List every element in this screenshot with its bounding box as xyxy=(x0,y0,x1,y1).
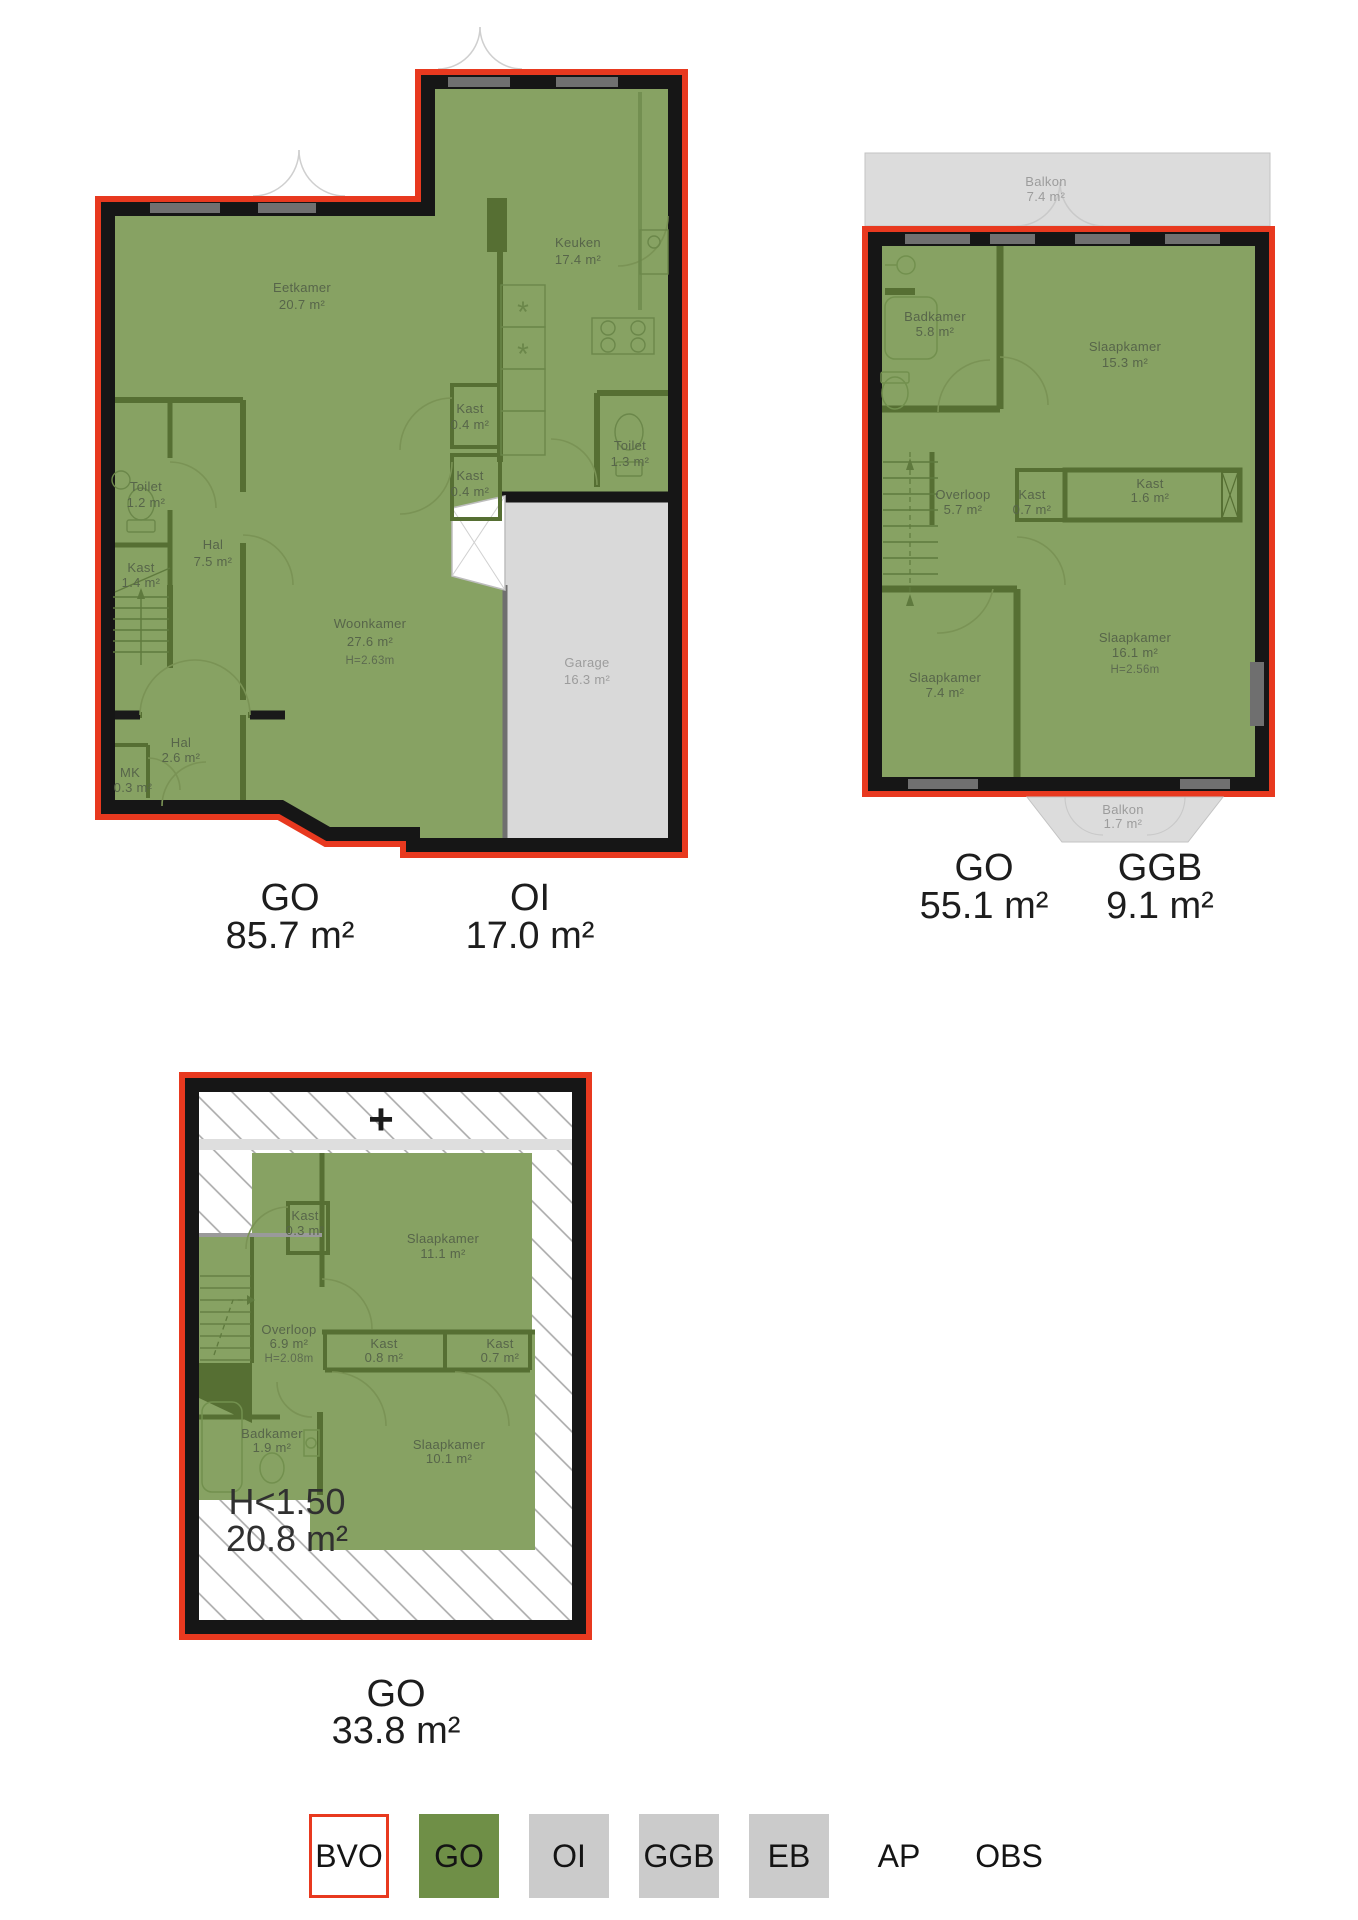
garage-door-icon xyxy=(452,496,505,590)
legend: BVO GO OI GGB EB AP OBS xyxy=(0,1814,1358,1898)
room-area: 0.4 m² xyxy=(451,484,490,499)
room-area: 15.3 m² xyxy=(1102,355,1149,370)
low-height-value: 20.8 m² xyxy=(226,1518,348,1559)
room-area: 0.4 m² xyxy=(451,417,490,432)
room-area: 0.8 m² xyxy=(365,1350,404,1365)
legend-item-ap: AP xyxy=(859,1814,939,1898)
room-label: Kast xyxy=(486,1336,513,1351)
svg-text:*: * xyxy=(517,338,529,371)
room-label: Kast xyxy=(291,1208,318,1223)
first-floor-plan: Balkon 7.4 m² Badkamer 5.8 m² Slaapkamer… xyxy=(865,153,1270,927)
room-area: 1.9 m² xyxy=(253,1440,292,1455)
room-label: Keuken xyxy=(555,235,601,250)
room-area: 11.1 m² xyxy=(420,1246,466,1261)
room-label: Kast xyxy=(370,1336,397,1351)
room-area: 1.7 m² xyxy=(1104,816,1143,831)
room-area: 5.7 m² xyxy=(944,502,983,517)
legend-item-oi: OI xyxy=(529,1814,609,1898)
room-area: 20.7 m² xyxy=(279,297,326,312)
room-label: Toilet xyxy=(130,479,162,494)
room-area: 16.3 m² xyxy=(564,672,611,687)
legend-item-go: GO xyxy=(419,1814,499,1898)
room-height: H=2.08m xyxy=(264,1353,313,1365)
area-value: 85.7 m² xyxy=(226,915,355,957)
low-height-label: H<1.50 20.8 m² xyxy=(226,1481,348,1559)
room-area: 1.2 m² xyxy=(127,495,166,510)
room-label: Overloop xyxy=(935,487,990,502)
room-label: Kast xyxy=(456,401,483,416)
area-labels: GO 85.7 m² OI 17.0 m² xyxy=(226,877,595,957)
legend-label: GGB xyxy=(643,1838,714,1875)
legend-item-ggb: GGB xyxy=(639,1814,719,1898)
room-label: Slaapkamer xyxy=(1099,630,1172,645)
room-area: 17.4 m² xyxy=(555,252,602,267)
legend-item-obs: OBS xyxy=(969,1814,1049,1898)
legend-item-bvo: BVO xyxy=(309,1814,389,1898)
balcony-top xyxy=(865,153,1270,226)
legend-item-eb: EB xyxy=(749,1814,829,1898)
area-code: GO xyxy=(366,1673,425,1715)
legend-label: BVO xyxy=(315,1838,383,1875)
legend-label: EB xyxy=(768,1838,811,1875)
room-label: Eetkamer xyxy=(273,280,331,295)
room-area: 10.1 m² xyxy=(426,1451,473,1466)
floorplans-canvas: * * Eetkamer 20.7 m² Keuken 17.4 m² Kast… xyxy=(0,0,1358,1920)
room-label: Kast xyxy=(1018,487,1045,502)
ground-floor-plan: * * Eetkamer 20.7 m² Keuken 17.4 m² Kast… xyxy=(112,27,668,957)
svg-text:*: * xyxy=(517,296,529,329)
room-area: 27.6 m² xyxy=(347,634,394,649)
room-area: 16.1 m² xyxy=(1112,645,1159,660)
room-label: Slaapkamer xyxy=(909,670,982,685)
room-label: Hal xyxy=(203,537,223,552)
plus-symbol: + xyxy=(368,1095,394,1144)
legend-label: AP xyxy=(878,1838,921,1875)
room-label: Balkon xyxy=(1102,802,1144,817)
area-value: 17.0 m² xyxy=(466,915,595,957)
low-height-code: H<1.50 xyxy=(228,1481,345,1522)
room-label: Badkamer xyxy=(241,1426,303,1441)
room-label: Balkon xyxy=(1025,174,1067,189)
area-value: 55.1 m² xyxy=(920,885,1049,927)
legend-label: OBS xyxy=(975,1838,1043,1875)
room-area: 0.3 m² xyxy=(286,1223,325,1238)
room-label: Slaapkamer xyxy=(413,1437,486,1452)
room-area: 1.6 m² xyxy=(1131,490,1170,505)
room-height: H=2.56m xyxy=(1110,664,1159,676)
room-area: 7.4 m² xyxy=(1027,189,1066,204)
room-label: Garage xyxy=(564,655,609,670)
room-label: Kast xyxy=(127,560,154,575)
room-label: Slaapkamer xyxy=(407,1231,480,1246)
attic-plan: + Kast 0.3 m² Slaapkamer 11.1 m² Overloo… xyxy=(199,1092,572,1752)
room-area: 0.7 m² xyxy=(481,1350,520,1365)
area-code: OI xyxy=(510,877,550,919)
floorplan-sheet: * * Eetkamer 20.7 m² Keuken 17.4 m² Kast… xyxy=(0,0,1358,1920)
area-value: 33.8 m² xyxy=(332,1710,461,1752)
room-label: Overloop xyxy=(261,1322,316,1337)
room-label: Woonkamer xyxy=(334,616,407,631)
area-labels: GO 33.8 m² xyxy=(332,1673,461,1752)
area-code: GO xyxy=(954,847,1013,889)
area-labels: GO 55.1 m² GGB 9.1 m² xyxy=(920,847,1214,927)
room-area: 2.6 m² xyxy=(162,750,201,765)
area-value: 9.1 m² xyxy=(1106,885,1214,927)
room-label: Hal xyxy=(171,735,191,750)
legend-label: OI xyxy=(552,1838,586,1875)
room-height: H=2.63m xyxy=(345,655,394,667)
room-area: 1.4 m² xyxy=(122,575,161,590)
window-block xyxy=(1250,662,1264,726)
room-label: Slaapkamer xyxy=(1089,339,1162,354)
room-label: Kast xyxy=(1136,476,1163,491)
area-code: GGB xyxy=(1118,847,1202,889)
room-label: Kast xyxy=(456,468,483,483)
room-area: 7.4 m² xyxy=(926,685,965,700)
room-label: MK xyxy=(120,765,140,780)
area-code: GO xyxy=(260,877,319,919)
room-label: Toilet xyxy=(614,438,646,453)
room-label: Badkamer xyxy=(904,309,966,324)
room-area: 7.5 m² xyxy=(194,554,233,569)
room-area: 0.7 m² xyxy=(1013,502,1052,517)
legend-label: GO xyxy=(434,1838,484,1875)
room-area: 6.9 m² xyxy=(270,1336,309,1351)
room-area: 0.3 m² xyxy=(114,780,153,795)
room-area: 5.8 m² xyxy=(916,324,955,339)
room-area: 1.3 m² xyxy=(611,454,650,469)
